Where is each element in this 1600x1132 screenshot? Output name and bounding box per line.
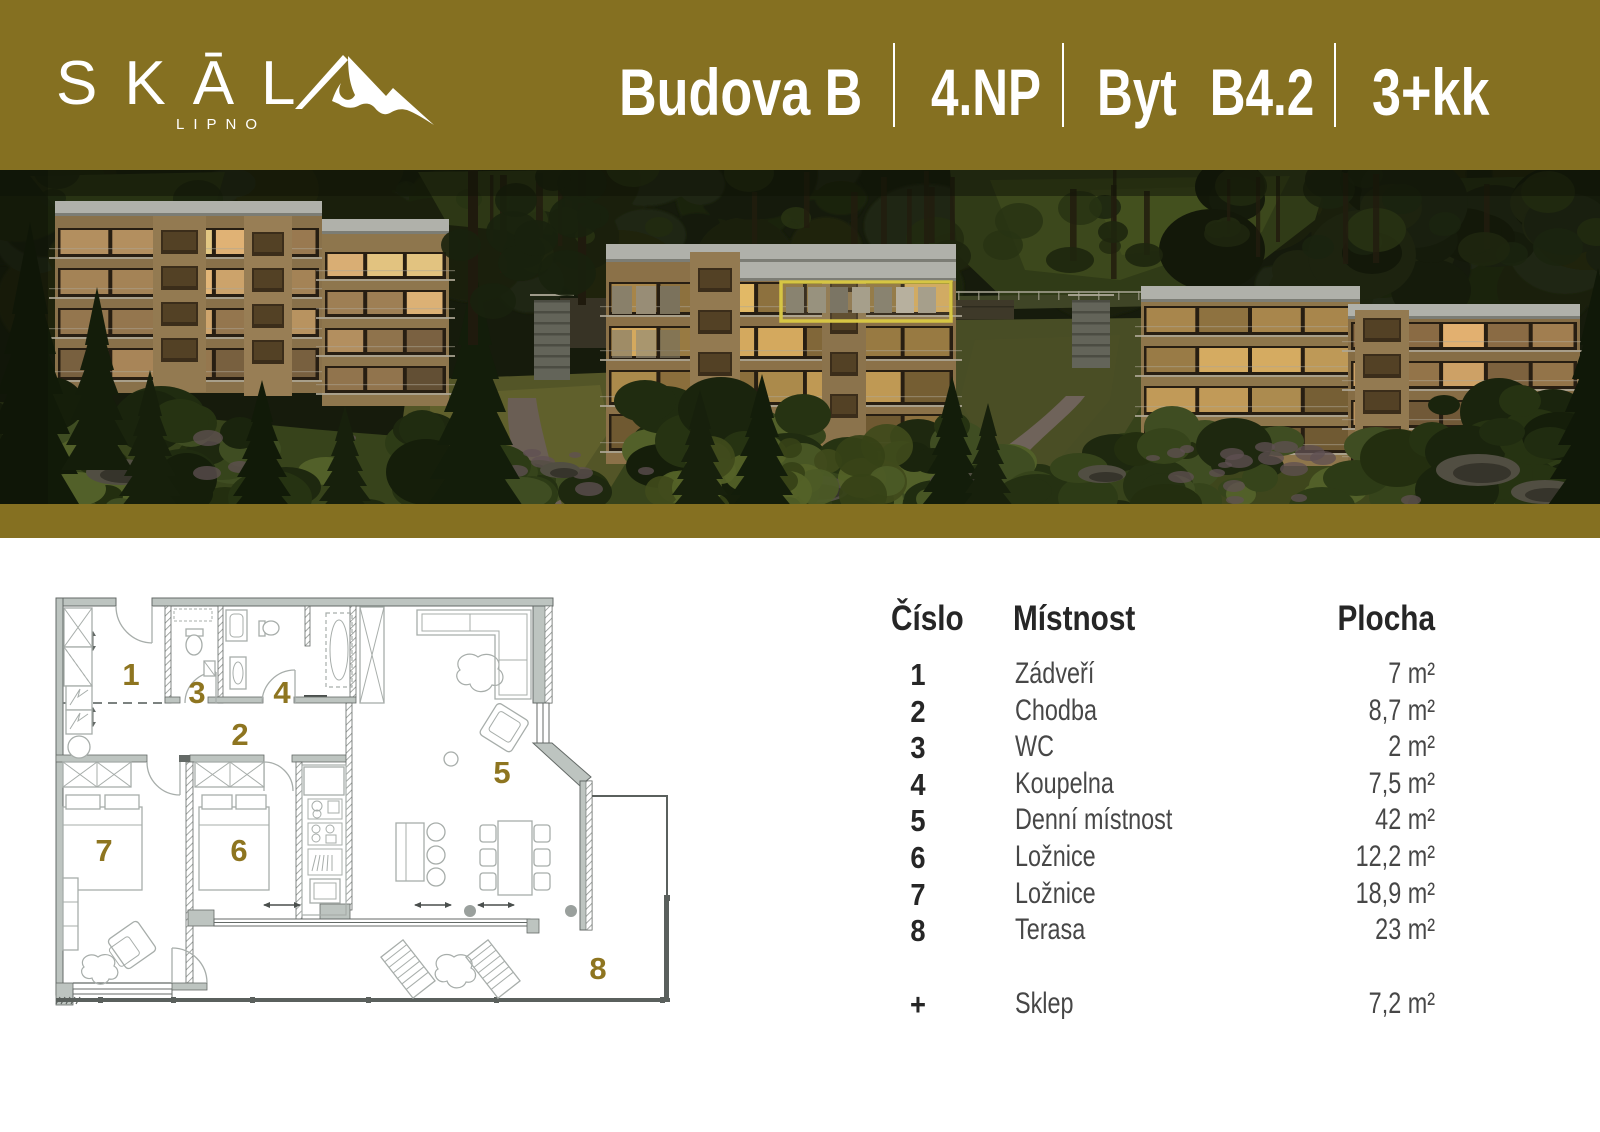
svg-text:3: 3 bbox=[188, 675, 205, 710]
svg-text:6: 6 bbox=[230, 833, 247, 868]
svg-text:5: 5 bbox=[493, 755, 510, 790]
svg-text:2: 2 bbox=[231, 717, 248, 752]
svg-text:7: 7 bbox=[95, 833, 112, 868]
svg-text:4: 4 bbox=[273, 675, 291, 710]
svg-text:8: 8 bbox=[589, 951, 606, 986]
svg-text:1: 1 bbox=[122, 657, 139, 692]
